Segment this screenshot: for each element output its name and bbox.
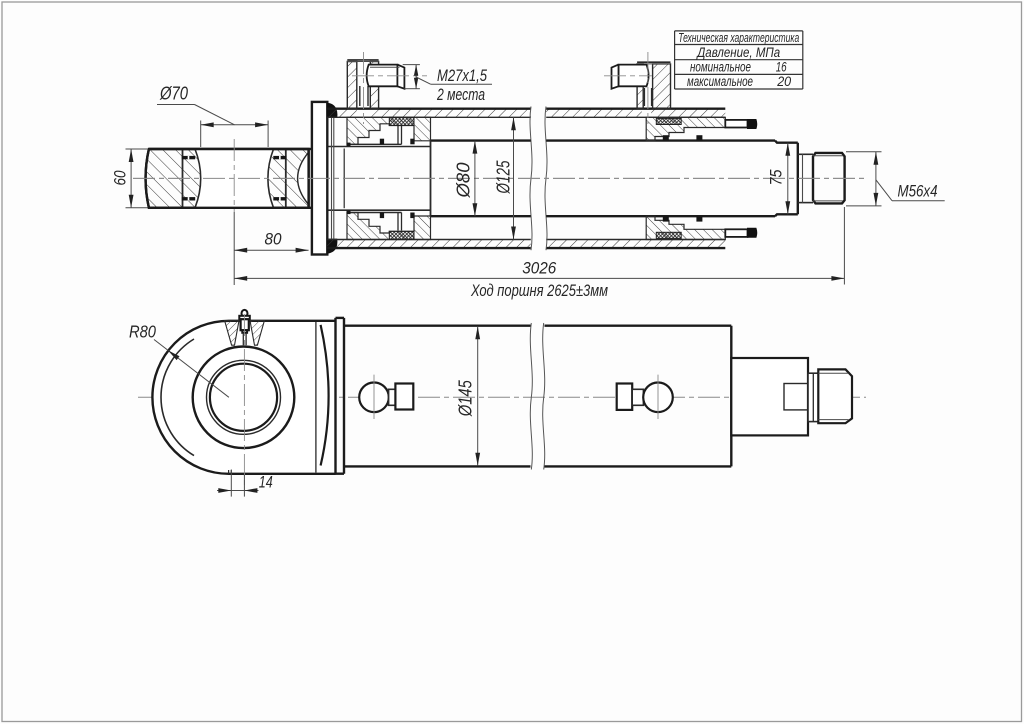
svg-text:75: 75 [767, 169, 786, 185]
svg-text:M56x4: M56x4 [898, 182, 938, 201]
svg-text:Ø145: Ø145 [456, 379, 476, 417]
svg-text:M27x1,5: M27x1,5 [437, 66, 487, 85]
svg-text:Ход поршня 2625±3мм: Ход поршня 2625±3мм [470, 281, 608, 300]
svg-text:80: 80 [265, 230, 282, 249]
svg-text:Техническая характеристика: Техническая характеристика [678, 31, 799, 45]
svg-text:Ø70: Ø70 [159, 84, 188, 104]
svg-text:максимальное: максимальное [687, 74, 753, 89]
svg-text:Ø125: Ø125 [494, 160, 514, 194]
svg-text:14: 14 [259, 474, 273, 492]
svg-text:20: 20 [776, 74, 791, 89]
svg-text:Давление, МПа: Давление, МПа [695, 45, 780, 60]
svg-text:16: 16 [776, 60, 787, 75]
svg-text:60: 60 [111, 170, 130, 185]
svg-text:2 места: 2 места [436, 85, 485, 104]
svg-text:R80: R80 [129, 322, 156, 342]
svg-text:номинальное: номинальное [690, 60, 751, 75]
svg-text:Ø80: Ø80 [454, 163, 474, 199]
svg-text:3026: 3026 [522, 258, 556, 277]
